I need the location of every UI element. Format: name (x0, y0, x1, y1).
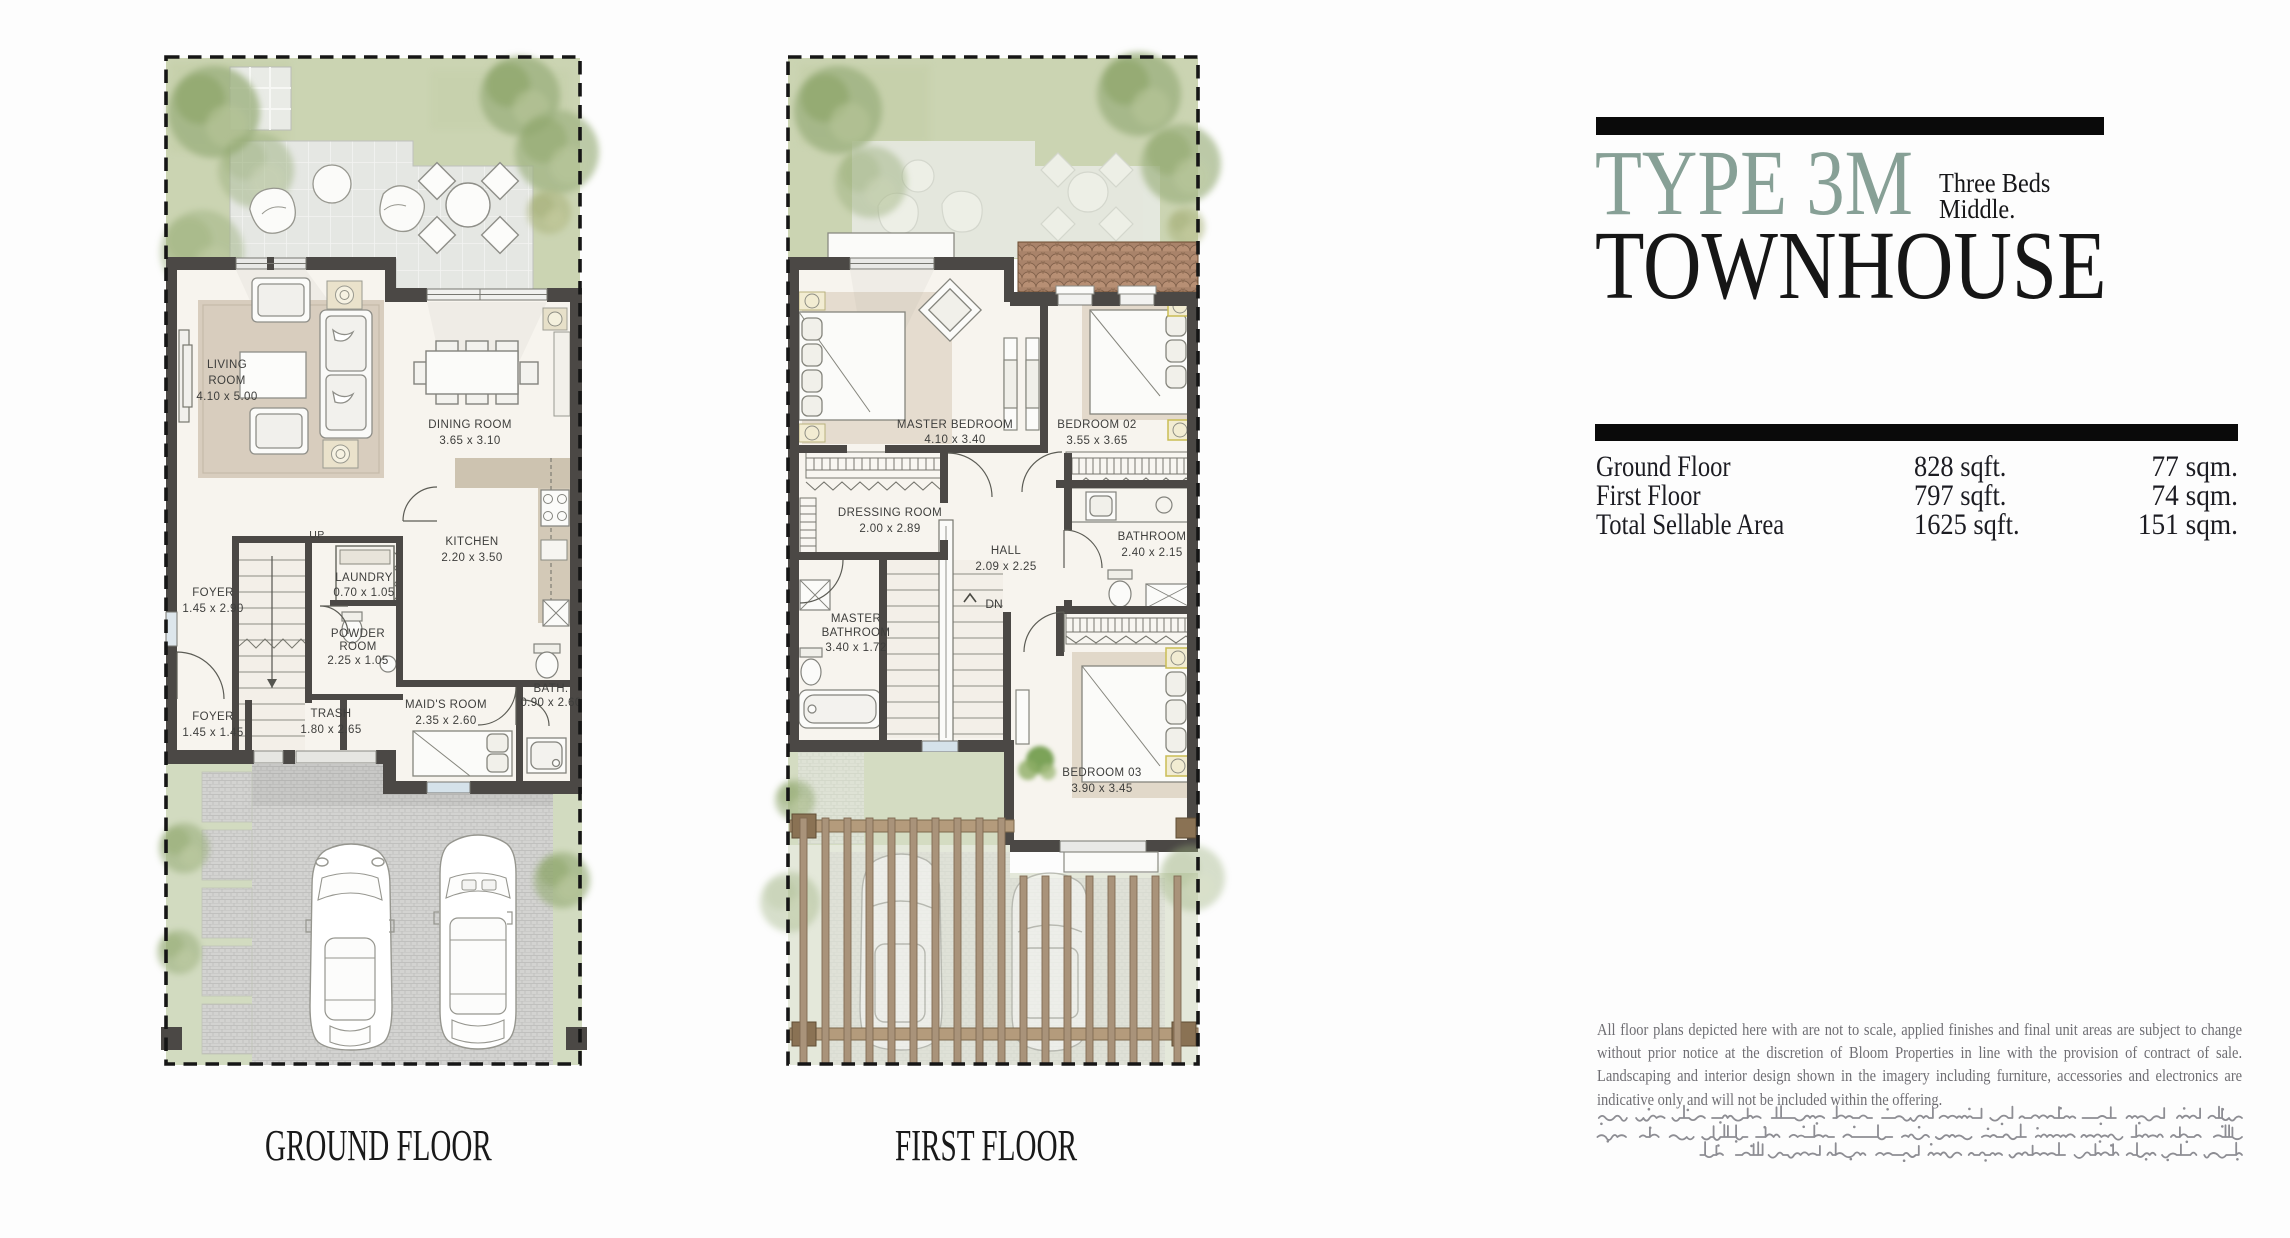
svg-text:1.45 x 1.45: 1.45 x 1.45 (182, 727, 243, 739)
svg-text:BEDROOM 03: BEDROOM 03 (1062, 767, 1141, 779)
svg-text:FOYER: FOYER (192, 711, 234, 723)
svg-text:0.90 x 2.60: 0.90 x 2.60 (520, 697, 581, 709)
svg-text:3.55 x 3.65: 3.55 x 3.65 (1066, 435, 1127, 447)
svg-text:TRASH: TRASH (311, 708, 352, 720)
svg-text:DN: DN (985, 597, 1002, 611)
svg-text:POWDER: POWDER (331, 628, 385, 640)
svg-text:3.40 x 1.72: 3.40 x 1.72 (825, 642, 886, 654)
svg-text:LIVING: LIVING (207, 359, 247, 371)
svg-text:ROOM: ROOM (339, 641, 376, 653)
svg-text:3.90 x 3.45: 3.90 x 3.45 (1071, 783, 1132, 795)
svg-text:BEDROOM 02: BEDROOM 02 (1057, 419, 1136, 431)
svg-text:1.45 x 2.90: 1.45 x 2.90 (182, 603, 243, 615)
svg-text:2.00 x 2.89: 2.00 x 2.89 (859, 523, 920, 535)
svg-text:3.65 x 3.10: 3.65 x 3.10 (439, 435, 500, 447)
svg-text:2.25 x 1.05: 2.25 x 1.05 (327, 655, 388, 667)
svg-text:MASTER: MASTER (831, 613, 881, 625)
svg-text:2.20 x 3.50: 2.20 x 3.50 (441, 552, 502, 564)
svg-text:4.10 x 5.00: 4.10 x 5.00 (196, 391, 257, 403)
svg-text:2.09 x 2.25: 2.09 x 2.25 (975, 561, 1036, 573)
svg-text:BATH.: BATH. (533, 683, 568, 695)
svg-text:LAUNDRY: LAUNDRY (335, 572, 393, 584)
svg-text:UP: UP (309, 529, 324, 541)
svg-text:MAID'S ROOM: MAID'S ROOM (405, 699, 487, 711)
svg-text:1.80 x 2.65: 1.80 x 2.65 (300, 724, 361, 736)
svg-text:FOYER: FOYER (192, 587, 234, 599)
svg-text:DRESSING ROOM: DRESSING ROOM (838, 507, 942, 519)
svg-text:BATHROOM: BATHROOM (1118, 531, 1187, 543)
svg-text:2.40 x 2.15: 2.40 x 2.15 (1121, 547, 1182, 559)
svg-text:4.10 x 3.40: 4.10 x 3.40 (924, 434, 985, 446)
svg-text:BATHROOM: BATHROOM (822, 627, 891, 639)
svg-text:0.70 x 1.05: 0.70 x 1.05 (333, 587, 394, 599)
svg-text:MASTER BEDROOM: MASTER BEDROOM (897, 419, 1013, 431)
svg-text:DINING ROOM: DINING ROOM (428, 419, 512, 431)
svg-text:HALL: HALL (991, 545, 1022, 557)
svg-text:KITCHEN: KITCHEN (445, 536, 498, 548)
svg-text:ROOM: ROOM (208, 375, 245, 387)
svg-text:2.35 x 2.60: 2.35 x 2.60 (415, 715, 476, 727)
